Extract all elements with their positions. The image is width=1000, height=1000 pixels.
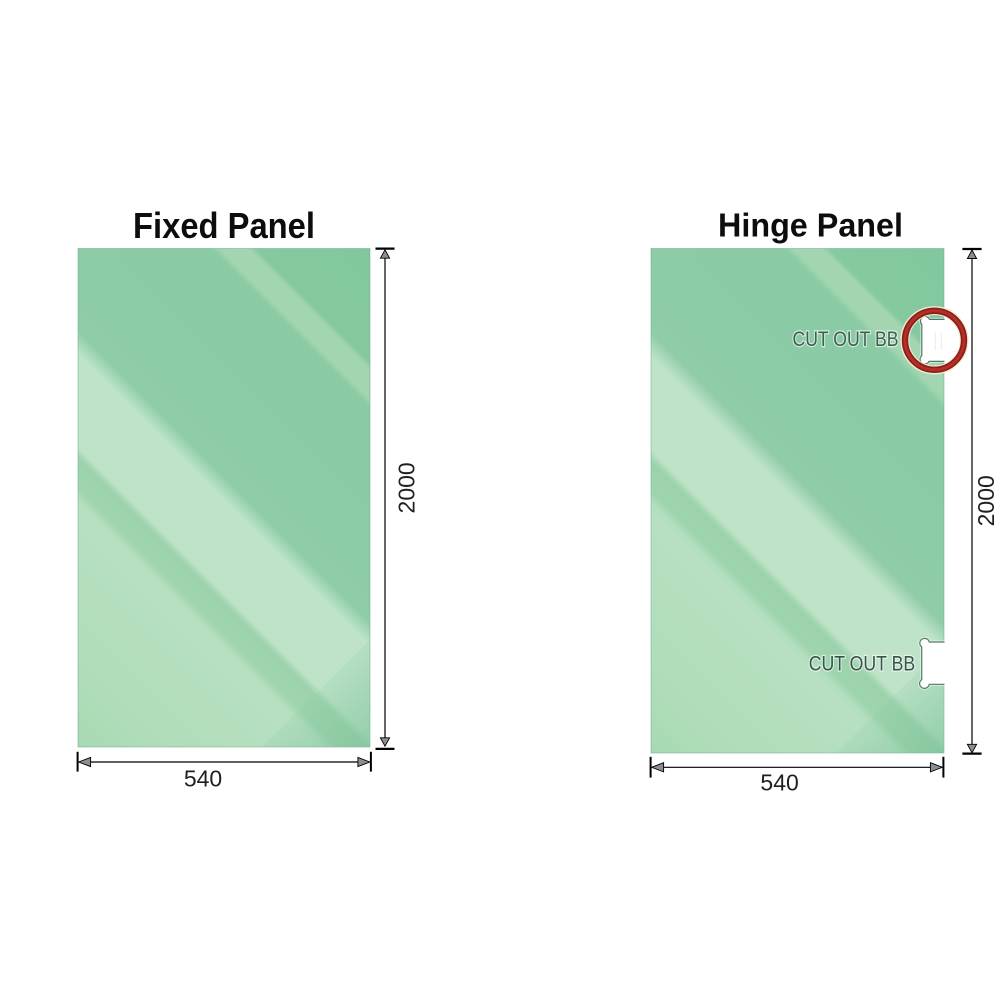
svg-text:540: 540 [184,766,222,792]
svg-text:540: 540 [760,770,798,796]
svg-text:Hinge Panel: Hinge Panel [718,207,903,244]
svg-text:CUT OUT BB: CUT OUT BB [793,328,899,351]
svg-text:Fixed Panel: Fixed Panel [133,205,315,246]
svg-text:CUT OUT BB: CUT OUT BB [809,652,916,675]
svg-text:2000: 2000 [973,475,999,526]
svg-text:2000: 2000 [394,462,420,513]
